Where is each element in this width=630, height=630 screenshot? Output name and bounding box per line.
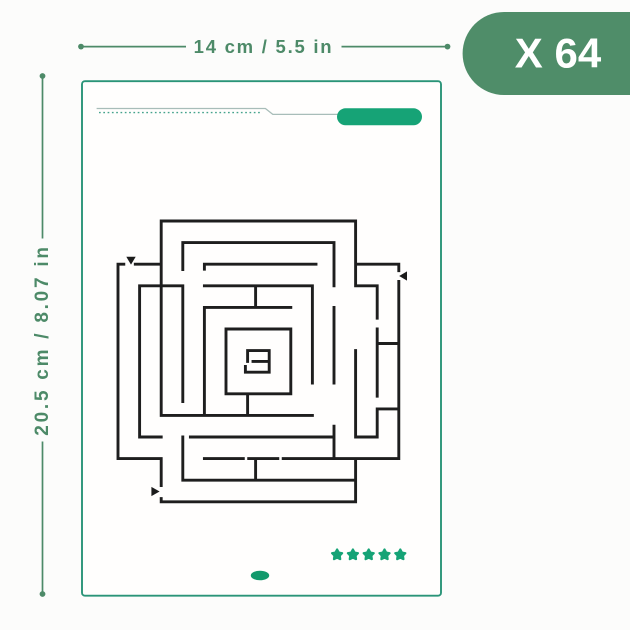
svg-text:20.5 cm / 8.07 in: 20.5 cm / 8.07 in [32,244,53,435]
svg-text:X 64: X 64 [515,30,602,77]
svg-text:14 cm / 5.5 in: 14 cm / 5.5 in [194,36,334,57]
